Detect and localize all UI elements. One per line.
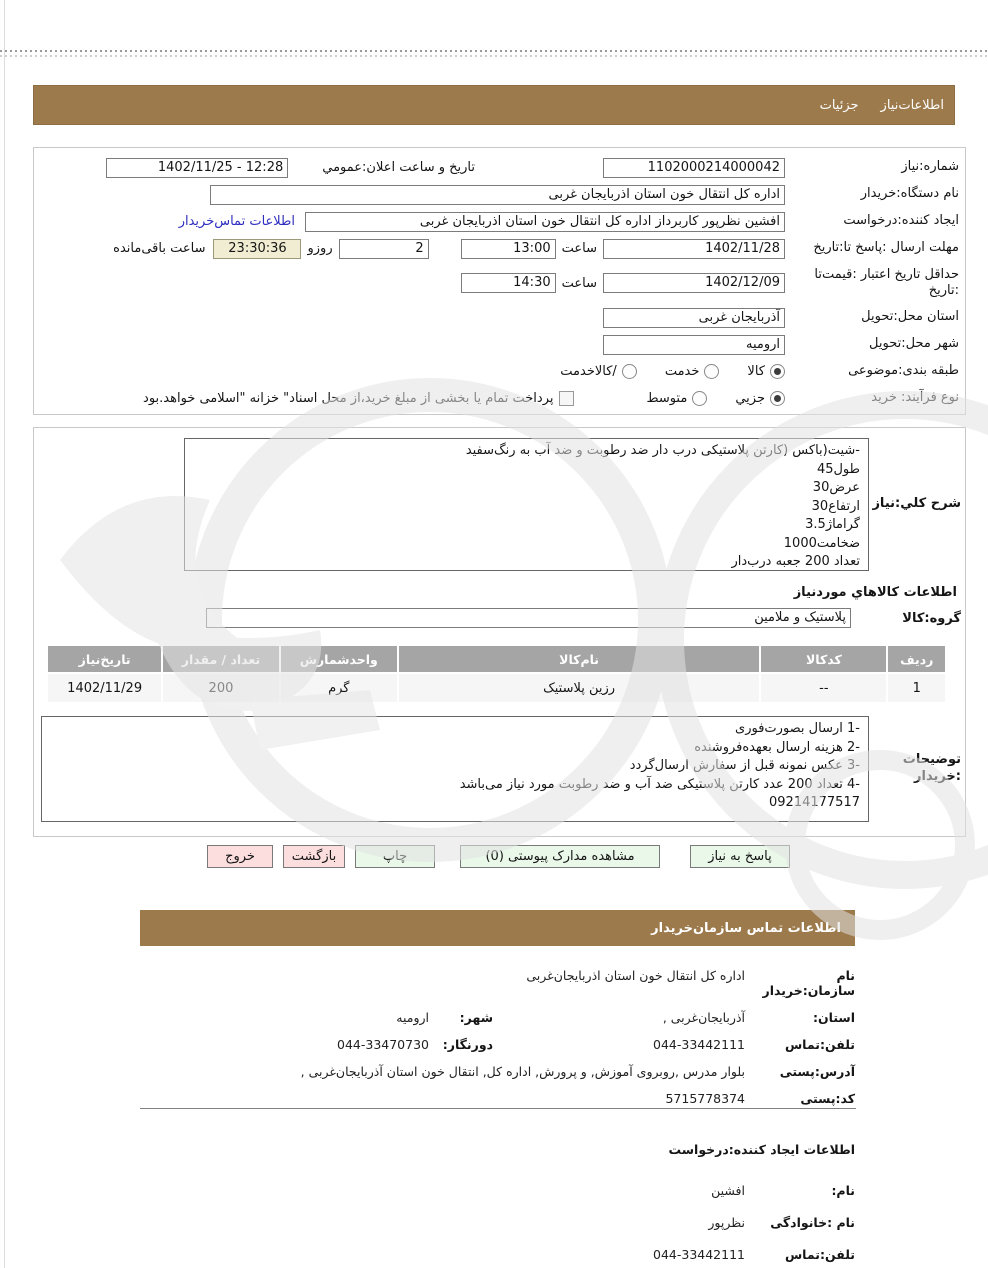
request-creator-label: ایجاد کننده:درخواست	[785, 213, 959, 229]
delivery-city-label: شهر محل:تحویل	[785, 336, 959, 352]
creator-phone-value: 044-33442111	[495, 1247, 745, 1262]
need-detail-box: شرح کلي:نیاز -شیت(باکس (کارتن پلاستیکی د…	[33, 427, 966, 837]
org-address-value: بلوار مدرس ,روبروی آموزش, و پرورش, اداره…	[140, 1064, 745, 1079]
deadline-hour-label: ساعت	[562, 241, 597, 256]
view-attached-docs-button[interactable]: مشاهده مدارک پیوستی (0)	[460, 845, 660, 868]
row-need-number: شماره:نیاز 1102000214000042 تاریخ و ساعت…	[40, 154, 959, 181]
validity-hour-input[interactable]: 14:30	[461, 273, 556, 293]
goods-table-row[interactable]: 1 -- رزین پلاستیک گرم 200 1402/11/29	[48, 674, 945, 702]
org-postal-value: 5715778374	[140, 1091, 745, 1106]
org-postal-label: کد:پستی	[745, 1091, 855, 1106]
creator-info-heading: اطلاعات ایجاد کننده:درخواست	[140, 1142, 855, 1157]
org-phone-fax-row: تلفن:تماس 044-33442111 دورنگار: 044-3347…	[140, 1037, 855, 1052]
buyer-notes-row: توضیحات :خریدار -1 ارسال بصورت‌فوری -2 ه…	[40, 716, 963, 822]
cell-unit: گرم	[281, 674, 397, 702]
need-description-textarea[interactable]: -شیت(باکس (کارتن پلاستیکی درب دار ضد رطو…	[184, 438, 869, 571]
action-buttons: پاسخ به نیاز مشاهده مدارک پیوستی (0) چاپ…	[207, 845, 790, 868]
days-label: روزو	[307, 241, 332, 256]
deadline-label: مهلت ارسال :پاسخ تا:تاریخ	[785, 240, 959, 256]
goods-group-row: گروه:کالا پلاستیک و ملامین	[40, 608, 963, 628]
device-name-input[interactable]: اداره کل انتقال خون استان اذربایجان غربی	[210, 185, 785, 205]
classification-label: طبقه بندی:موضوعی	[785, 363, 959, 379]
goods-group-label: گروه:کالا	[851, 611, 963, 626]
creator-name-row: نام: افشین	[140, 1183, 855, 1198]
creator-family-label: نام :خانوادگی	[745, 1215, 855, 1230]
radio-medium-label: متوسط	[646, 391, 687, 406]
org-phone-value: 044-33442111	[493, 1037, 745, 1052]
buyer-notes-textarea[interactable]: -1 ارسال بصورت‌فوری -2 هزینه ارسال بعهده…	[41, 716, 869, 822]
print-button[interactable]: چاپ	[355, 845, 435, 868]
need-desc-line: عرض30	[193, 479, 860, 498]
org-phone-label: تلفن:تماس	[745, 1037, 855, 1052]
back-button[interactable]: بازگشت	[283, 845, 345, 868]
need-number-label: شماره:نیاز	[785, 159, 959, 175]
radio-minor-label: جزيي	[735, 391, 765, 406]
row-classification: طبقه بندی:موضوعی کالا خدمت /کالاخدمت	[40, 358, 959, 385]
treasury-checkbox-label: پرداخت تمام یا بخشی از مبلغ خرید،از محل …	[143, 391, 553, 406]
col-quantity: تعداد / مقدار	[163, 646, 278, 672]
delivery-province-input[interactable]: آذربایجان غربی	[603, 308, 785, 328]
row-device-name: نام دستگاه:خریدار اداره کل انتقال خون اس…	[40, 181, 959, 208]
org-contact-bar: اطلاعات تماس سازمان‌خریدار	[140, 910, 855, 946]
need-desc-line: ضخامت1000	[193, 535, 860, 554]
cell-need-date: 1402/11/29	[48, 674, 161, 702]
page: جزئیات اطلاعات‌نیاز شماره:نیاز 110200021…	[0, 0, 988, 1268]
creator-info-section: اطلاعات ایجاد کننده:درخواست نام: افشین ن…	[140, 1142, 855, 1268]
org-name-value: اداره کل انتقال خون استان اذربایجان‌غربی	[140, 968, 745, 983]
col-need-date: تاریخ‌نیاز	[48, 646, 161, 672]
goods-section-heading: اطلاعات کالاهاي موردنیاز	[40, 585, 957, 600]
row-request-creator: ایجاد کننده:درخواست افشین نظرپور کاربردا…	[40, 208, 959, 235]
radio-goods-service-label: /کالاخدمت	[560, 364, 617, 379]
need-desc-line: ارتفاع30	[193, 498, 860, 517]
validity-date-input[interactable]: 1402/12/09	[603, 273, 785, 293]
org-address-label: آدرس:پستی	[745, 1064, 855, 1079]
reply-to-need-button[interactable]: پاسخ به نیاز	[690, 845, 790, 868]
note-line: -2 هزینه ارسال بعهده‌فروشنده	[50, 739, 860, 758]
left-edge-line	[4, 0, 5, 1268]
cell-quantity: 200	[163, 674, 278, 702]
cell-goods-code: --	[761, 674, 886, 702]
radio-goods-service[interactable]	[622, 364, 637, 379]
note-line: -4 تعداد 200 عدد کارتن پلاستیکی ضد آب و …	[50, 776, 860, 795]
col-row-index: ردیف	[888, 646, 945, 672]
row-deadline: مهلت ارسال :پاسخ تا:تاریخ 1402/11/28 ساع…	[40, 235, 959, 262]
note-line: 09214177517	[50, 794, 860, 813]
cell-row-index: 1	[888, 674, 945, 702]
org-name-label: نام سازمان:خریدار	[745, 968, 855, 998]
validity-label: حداقل تاریخ اعتبار :قیمت‌تا :تاریخ	[803, 267, 959, 300]
radio-service[interactable]	[704, 364, 719, 379]
delivery-province-label: استان محل:تحویل	[785, 309, 959, 325]
org-address-row: آدرس:پستی بلوار مدرس ,روبروی آموزش, و پر…	[140, 1064, 855, 1079]
note-line: -1 ارسال بصورت‌فوری	[50, 720, 860, 739]
row-process-type: نوع فرآیند: خرید جزيي متوسط پرداخت تمام …	[40, 385, 959, 412]
radio-goods-label: کالا	[747, 364, 765, 379]
need-description-row: شرح کلي:نیاز -شیت(باکس (کارتن پلاستیکی د…	[40, 438, 963, 571]
creator-name-value: افشین	[495, 1183, 745, 1198]
note-line: -3 عکس نمونه قبل از سفارش ارسال‌گردد	[50, 757, 860, 776]
device-name-label: نام دستگاه:خریدار	[785, 186, 959, 202]
need-description-label: شرح کلي:نیاز	[869, 496, 963, 513]
process-type-label: نوع فرآیند: خرید	[785, 390, 959, 406]
buyer-notes-label: توضیحات :خریدار	[869, 752, 963, 786]
creator-phone-label: تلفن:تماس	[745, 1247, 855, 1262]
buyer-contact-link[interactable]: اطلاعات تماس‌خریدار	[179, 214, 295, 229]
delivery-city-input[interactable]: ارومیه	[603, 335, 785, 355]
deadline-days-input[interactable]: 2	[339, 239, 429, 259]
row-delivery-province: استان محل:تحویل آذربایجان غربی	[40, 304, 959, 331]
creator-phone-row: تلفن:تماس 044-33442111	[140, 1247, 855, 1262]
countdown-timer: 23:30:36	[213, 239, 301, 259]
row-delivery-city: شهر محل:تحویل ارومیه	[40, 331, 959, 358]
radio-goods[interactable]	[770, 364, 785, 379]
deadline-date-input[interactable]: 1402/11/28	[603, 239, 785, 259]
org-province-label: استان:	[745, 1010, 855, 1025]
radio-medium[interactable]	[692, 391, 707, 406]
row-validity: حداقل تاریخ اعتبار :قیمت‌تا :تاریخ 1402/…	[40, 262, 959, 304]
need-desc-line: طول45	[193, 461, 860, 480]
announce-datetime-label: تاریخ و ساعت اعلان:عمومي	[322, 160, 475, 175]
radio-service-label: خدمت	[665, 364, 700, 379]
creator-name-label: نام:	[745, 1183, 855, 1198]
org-name-row: نام سازمان:خریدار اداره کل انتقال خون اس…	[140, 968, 855, 998]
need-number-input[interactable]: 1102000214000042	[603, 158, 785, 178]
org-fax-value: 044-33470730	[249, 1037, 429, 1052]
org-contact-section: نام سازمان:خریدار اداره کل انتقال خون اس…	[140, 968, 855, 1118]
countdown-label: ساعت باقی‌مانده	[113, 241, 205, 256]
request-creator-input[interactable]: افشین نظرپور کاربرداز اداره کل انتقال خو…	[305, 212, 785, 232]
treasury-checkbox[interactable]	[559, 391, 574, 406]
goods-table-header-row: ردیف کدکالا نام‌کالا واحدشمارش تعداد / م…	[48, 646, 945, 672]
need-desc-line: تعداد 200 جعبه درب‌دار	[193, 553, 860, 571]
org-city-label: شهر:	[429, 1010, 493, 1025]
need-summary-box: شماره:نیاز 1102000214000042 تاریخ و ساعت…	[33, 147, 966, 415]
tab-details[interactable]: جزئیات	[820, 98, 859, 113]
tab-need-info[interactable]: اطلاعات‌نیاز	[881, 98, 944, 113]
validity-hour-label: ساعت	[562, 276, 597, 291]
radio-minor[interactable]	[770, 391, 785, 406]
org-city-value: ارومیه	[249, 1010, 429, 1025]
org-postal-row: کد:پستی 5715778374	[140, 1091, 855, 1106]
exit-button[interactable]: خروج	[207, 845, 273, 868]
deadline-hour-input[interactable]: 13:00	[461, 239, 556, 259]
section-divider	[140, 1108, 856, 1109]
announce-datetime-input[interactable]: 12:28 - 1402/11/25	[106, 158, 288, 178]
cell-goods-name: رزین پلاستیک	[399, 674, 759, 702]
need-desc-line: گراماژ3.5	[193, 516, 860, 535]
creator-family-row: نام :خانوادگی نظرپور	[140, 1215, 855, 1230]
perforation-separator	[0, 50, 988, 57]
goods-table: ردیف کدکالا نام‌کالا واحدشمارش تعداد / م…	[46, 644, 947, 704]
col-unit: واحدشمارش	[281, 646, 397, 672]
org-province-value: آذربایجان‌غربی ,	[493, 1010, 745, 1025]
col-goods-name: نام‌کالا	[399, 646, 759, 672]
org-province-city-row: استان: آذربایجان‌غربی , شهر: ارومیه	[140, 1010, 855, 1025]
need-desc-line: -شیت(باکس (کارتن پلاستیکی درب دار ضد رطو…	[193, 442, 860, 461]
org-contact-bar-title: اطلاعات تماس سازمان‌خریدار	[651, 921, 841, 936]
titlebar: جزئیات اطلاعات‌نیاز	[33, 85, 955, 125]
goods-group-input[interactable]: پلاستیک و ملامین	[206, 608, 851, 628]
col-goods-code: کدکالا	[761, 646, 886, 672]
org-fax-label: دورنگار:	[429, 1037, 493, 1052]
creator-family-value: نظرپور	[495, 1215, 745, 1230]
